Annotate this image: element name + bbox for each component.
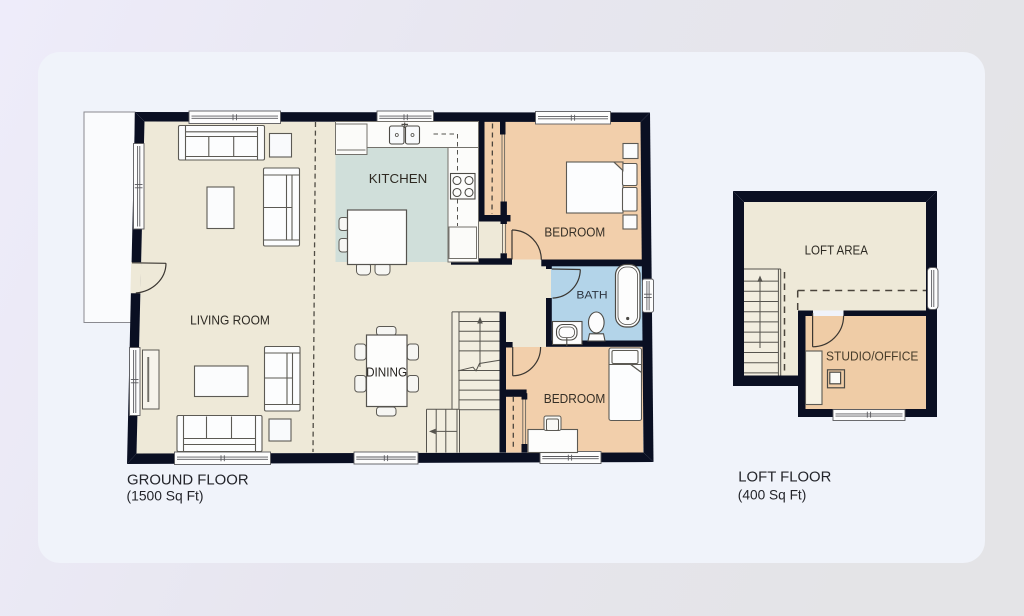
svg-text:KITCHEN: KITCHEN — [369, 171, 428, 186]
svg-text:LOFT FLOOR: LOFT FLOOR — [738, 469, 831, 486]
svg-text:LOFT AREA: LOFT AREA — [805, 243, 869, 258]
svg-text:BATH: BATH — [576, 290, 607, 302]
svg-text:(1500 Sq Ft): (1500 Sq Ft) — [127, 488, 204, 504]
svg-text:BEDROOM: BEDROOM — [544, 224, 605, 239]
svg-text:(400 Sq Ft): (400 Sq Ft) — [738, 486, 807, 502]
svg-text:GROUND FLOOR: GROUND FLOOR — [127, 471, 249, 488]
svg-text:BEDROOM: BEDROOM — [544, 391, 606, 406]
svg-text:LIVING ROOM: LIVING ROOM — [190, 312, 270, 327]
svg-text:STUDIO/OFFICE: STUDIO/OFFICE — [826, 350, 918, 364]
svg-text:DINING: DINING — [366, 364, 407, 379]
